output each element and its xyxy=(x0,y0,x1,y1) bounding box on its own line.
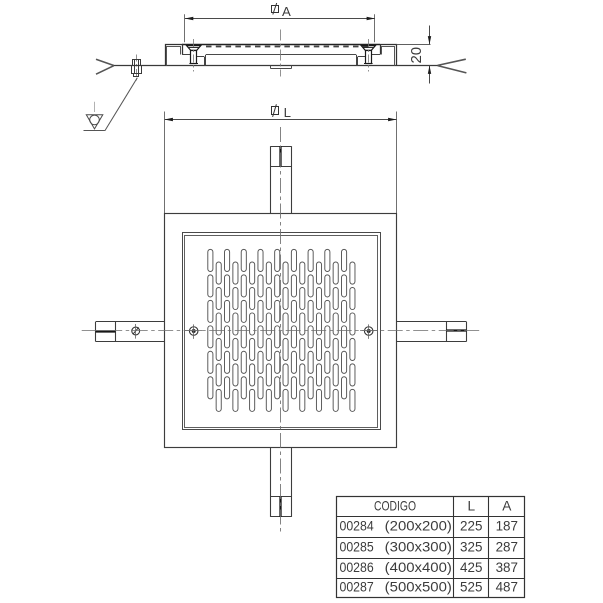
svg-text:L: L xyxy=(284,105,291,120)
svg-text:225: 225 xyxy=(460,519,483,534)
svg-text:20: 20 xyxy=(408,47,425,64)
svg-text:(500x500): (500x500) xyxy=(385,579,452,594)
svg-text:325: 325 xyxy=(460,539,483,554)
svg-text:L: L xyxy=(467,499,475,514)
svg-text:(400x400): (400x400) xyxy=(385,560,452,575)
svg-text:387: 387 xyxy=(496,560,518,575)
svg-text:A: A xyxy=(502,499,512,514)
svg-text:(300x300): (300x300) xyxy=(385,539,452,554)
svg-text:487: 487 xyxy=(496,579,518,594)
svg-text:00285: 00285 xyxy=(340,539,375,554)
svg-text:CODIGO: CODIGO xyxy=(374,499,416,514)
svg-text:00284: 00284 xyxy=(340,519,375,534)
svg-text:425: 425 xyxy=(460,560,483,575)
svg-text:(200x200): (200x200) xyxy=(385,519,452,534)
svg-text:525: 525 xyxy=(460,579,483,594)
svg-text:00287: 00287 xyxy=(340,579,374,594)
svg-text:187: 187 xyxy=(496,519,518,534)
svg-text:00286: 00286 xyxy=(340,560,375,575)
svg-text:A: A xyxy=(282,4,291,19)
svg-text:287: 287 xyxy=(496,539,518,554)
